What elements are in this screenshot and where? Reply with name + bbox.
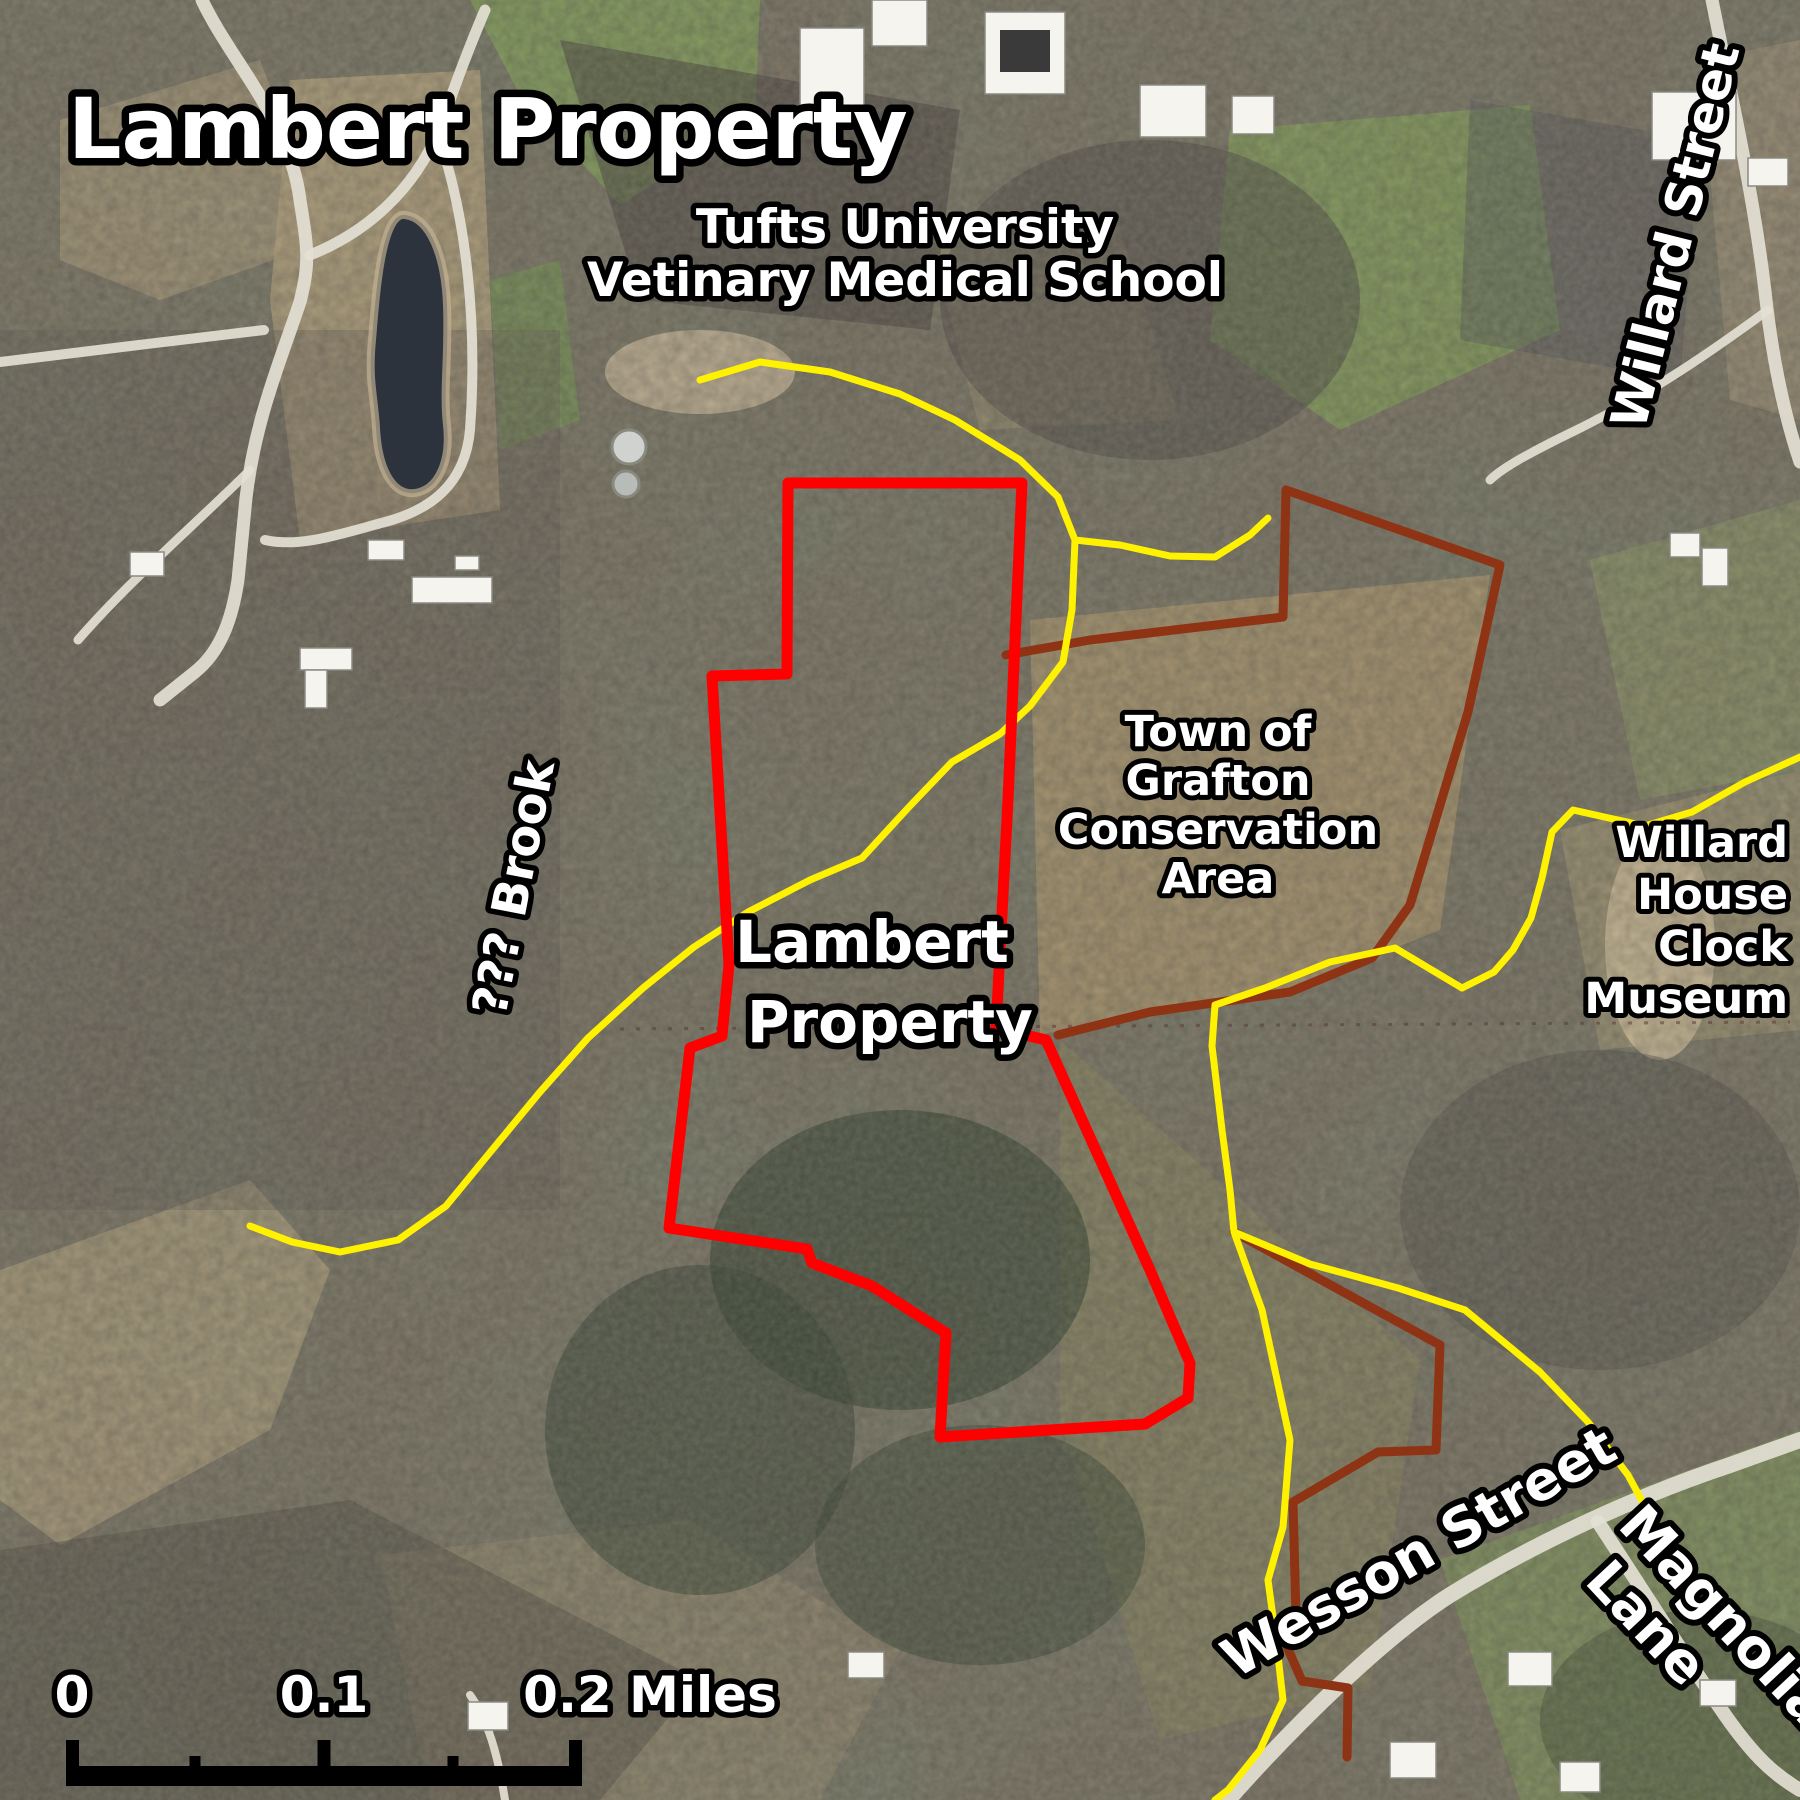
label-grafton-line1: Town of xyxy=(1125,707,1313,757)
label-grafton-line4: Area xyxy=(1162,854,1275,904)
scale-tick-mid xyxy=(318,1740,331,1786)
label-museum-line3: Clock xyxy=(1658,922,1789,972)
label-tufts-university-line2: Vetinary Medical School xyxy=(587,253,1223,308)
scale-tick-0 xyxy=(66,1740,79,1786)
pond xyxy=(371,215,448,493)
scale-tick-q1 xyxy=(190,1756,201,1786)
scale-tick-q3 xyxy=(448,1756,459,1786)
label-lambert-property-line2: Property xyxy=(747,988,1033,1056)
scale-label-0: 0 xyxy=(55,1666,90,1724)
label-museum-line4: Museum xyxy=(1584,974,1788,1024)
label-museum-line2: House xyxy=(1637,870,1788,920)
scale-label-01: 0.1 xyxy=(280,1666,369,1724)
label-museum-line1: Willard xyxy=(1615,818,1788,868)
scale-tick-end xyxy=(569,1740,582,1786)
label-lambert-property-line1: Lambert xyxy=(735,908,1009,976)
page-title: Lambert Property xyxy=(68,80,908,178)
label-tufts-university-line1: Tufts University xyxy=(696,200,1114,255)
label-grafton-line3: Conservation xyxy=(1058,805,1378,855)
map-canvas: Lambert Property Tufts University Vetina… xyxy=(0,0,1800,1800)
scale-label-02-miles: 0.2 Miles xyxy=(523,1666,777,1724)
map-screenshot: Lambert Property Tufts University Vetina… xyxy=(0,0,1800,1800)
label-grafton-line2: Grafton xyxy=(1126,756,1311,806)
